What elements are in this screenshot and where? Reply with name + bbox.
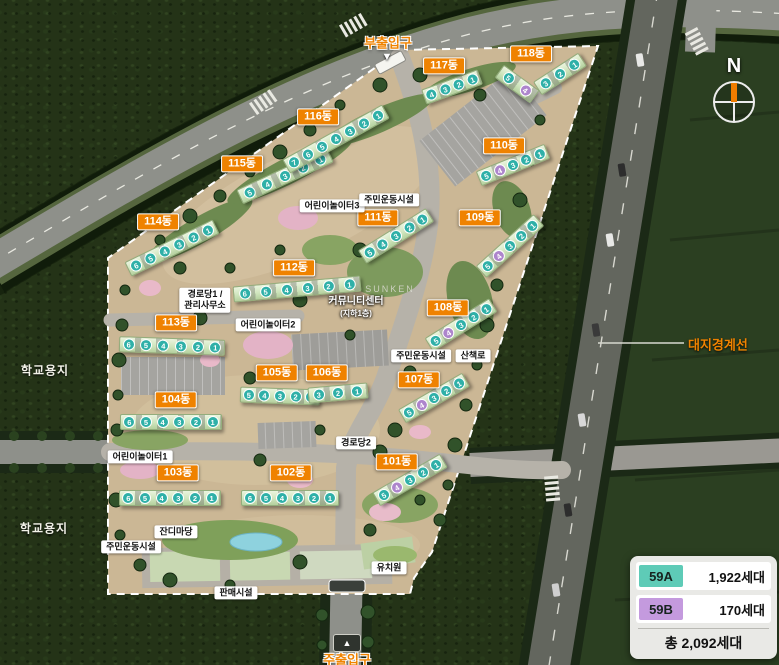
unit-circle-59A: 4: [259, 176, 275, 192]
building-label-114동: 114동: [137, 213, 179, 230]
unit-circle-59A: 6: [122, 492, 134, 504]
unit-circle-59A: 7: [286, 154, 302, 170]
facility-label: 판매시설: [214, 586, 257, 599]
boundary-label: 대지경계선: [688, 335, 748, 354]
building-label-115동: 115동: [221, 155, 263, 172]
unit-circle-59A: 6: [122, 338, 134, 350]
facility-label: 커뮤니티센터(지하1층): [328, 296, 383, 319]
unit-circle-59A: 3: [174, 340, 186, 352]
unit-circle-59A: 3: [502, 238, 519, 255]
building-label-108동: 108동: [427, 299, 469, 316]
unit-circle-59A: 1: [200, 222, 216, 238]
facility-label: 어린이놀이터1: [108, 450, 173, 463]
legend-swatch: 59B: [639, 598, 683, 620]
unit-circle-59A: 2: [451, 77, 466, 92]
unit-circle-59A: 1: [532, 146, 548, 162]
facility-label: 주민운동시설: [101, 540, 161, 553]
unit-circle-59A: 3: [172, 492, 184, 504]
unit-type-legend: 59A1,922세대59B170세대 총 2,092세대: [630, 556, 777, 659]
unit-circle-59A: 5: [243, 389, 255, 401]
unit-circle-59A: 4: [424, 87, 439, 102]
unit-circle-59A: 5: [314, 139, 330, 155]
unit-circle-59A: 4: [156, 492, 168, 504]
unit-circle-59A: 3: [292, 492, 304, 504]
unit-circle-59A: 5: [140, 416, 152, 428]
unit-circle-59A: 2: [289, 390, 301, 402]
unit-circle-59A: 1: [343, 278, 356, 291]
building-strip-118동: 54: [494, 65, 539, 104]
unit-circle-59A: 1: [351, 385, 364, 398]
unit-circle-59A: 2: [192, 341, 204, 353]
entrance-arrow-icon: ▼: [382, 51, 393, 63]
building-label-107동: 107동: [398, 371, 440, 388]
unit-circle-59A: 5: [361, 244, 378, 261]
unit-circle-59B: 4: [490, 248, 507, 265]
unit-circle-59A: 5: [500, 69, 517, 86]
unit-circle-59B: 4: [492, 163, 508, 179]
building-strip-113동: 654321: [119, 336, 225, 356]
unit-circle-59A: 1: [465, 72, 480, 87]
building-label-104동: 104동: [155, 391, 197, 408]
building-label-116동: 116동: [297, 108, 339, 125]
facility-label: 주민운동시설: [359, 193, 419, 206]
facility-label: 경로당1 /관리사무소: [179, 288, 230, 313]
unit-circle-59A: 1: [370, 108, 386, 124]
unit-circle-59A: 3: [171, 236, 187, 252]
site-plan-image: 54321101동654321102동654321103동654321104동5…: [0, 0, 779, 665]
unit-circle-59A: 3: [274, 390, 286, 402]
unit-circle-59B: 4: [389, 479, 405, 495]
unit-circle-59A: 5: [260, 492, 272, 504]
unit-circle-59B: 4: [517, 82, 534, 99]
unit-circle-59A: 5: [142, 250, 158, 266]
unit-circle-59A: 2: [513, 227, 530, 244]
unit-circle-59A: 5: [375, 487, 391, 503]
building-strip-104동: 654321: [120, 414, 222, 430]
unit-circle-59A: 2: [331, 387, 344, 400]
unit-circle-59A: 5: [259, 285, 272, 298]
unit-circle-59A: 6: [244, 492, 256, 504]
compass: N: [710, 56, 758, 131]
unit-circle-59A: 3: [173, 416, 185, 428]
building-strip-102동: 654321: [241, 490, 339, 506]
unit-circle-59A: 4: [328, 131, 344, 147]
unit-circle-59A: 5: [241, 185, 257, 201]
unit-circle-59A: 2: [308, 492, 320, 504]
legend-value: 170세대: [689, 600, 765, 619]
legend-value: 1,922세대: [689, 567, 765, 586]
compass-north-label: N: [710, 56, 758, 76]
unit-circle-59A: 1: [324, 492, 336, 504]
unit-circle-59A: 3: [388, 228, 405, 245]
legend-row: 59A1,922세대: [636, 562, 771, 590]
unit-circle-59A: 3: [312, 388, 325, 401]
unit-circle-59A: 6: [128, 258, 144, 274]
unit-circle-59A: 5: [478, 168, 494, 184]
unit-circle-59A: 3: [537, 75, 554, 92]
building-label-101동: 101동: [376, 453, 418, 470]
school-site-label: 학교용지: [20, 520, 68, 537]
unit-circle-59A: 2: [401, 219, 418, 236]
unit-circle-59A: 4: [258, 389, 270, 401]
facility-label: 산책로: [456, 349, 491, 362]
building-strip-117동: 4321: [421, 69, 483, 105]
unit-circle-59A: 3: [342, 123, 358, 139]
unit-circle-59A: 4: [157, 416, 169, 428]
unit-circle-59A: 2: [322, 280, 335, 293]
unit-circle-59A: 1: [428, 457, 444, 473]
unit-circle-59A: 5: [401, 404, 417, 420]
unit-circle-59A: 6: [300, 146, 316, 162]
unit-circle-59A: 2: [190, 416, 202, 428]
legend-total: 총 2,092세대: [638, 628, 769, 655]
facility-label: 유치원: [372, 561, 407, 574]
facility-label: 잔디마당: [154, 525, 197, 538]
building-label-109동: 109동: [459, 209, 501, 226]
unit-circle-59A: 6: [238, 287, 251, 300]
unit-circle-59A: 2: [552, 66, 569, 83]
building-label-102동: 102동: [270, 464, 312, 481]
unit-circle-59A: 1: [451, 375, 467, 391]
facility-label: 주민운동시설: [391, 349, 451, 362]
facility-label: 어린이놀이터2: [236, 318, 301, 331]
unit-circle-59A: 3: [437, 82, 452, 97]
unit-circle-59A: 4: [280, 283, 293, 296]
unit-circle-59A: 1: [478, 301, 495, 318]
entrance-label: 부출입구: [364, 33, 412, 52]
unit-circle-59A: 6: [123, 416, 135, 428]
building-label-105동: 105동: [256, 364, 298, 381]
unit-circle-59A: 5: [479, 258, 496, 275]
unit-circle-59A: 2: [186, 229, 202, 245]
facility-label: 어린이놀이터3: [300, 199, 365, 212]
building-label-106동: 106동: [306, 364, 348, 381]
unit-circle-59A: 4: [276, 492, 288, 504]
unit-circle-59A: 4: [157, 243, 173, 259]
building-label-110동: 110동: [483, 137, 525, 154]
building-label-112동: 112동: [273, 259, 315, 276]
unit-circle-59A: 1: [566, 56, 583, 73]
unit-circle-59A: 3: [453, 317, 470, 334]
unit-circle-59A: 5: [140, 339, 152, 351]
building-strip-106동: 321: [307, 382, 368, 403]
facility-label: SUNKEN: [365, 284, 415, 294]
unit-circle-59A: 5: [139, 492, 151, 504]
unit-circle-59A: 2: [189, 492, 201, 504]
unit-circle-59A: 4: [157, 339, 169, 351]
unit-circle-59B: 4: [440, 325, 457, 342]
legend-swatch: 59A: [639, 565, 683, 587]
school-site-label: 학교용지: [21, 362, 69, 379]
unit-circle-59A: 1: [414, 211, 431, 228]
unit-circle-59A: 3: [402, 472, 418, 488]
building-label-113동: 113동: [155, 314, 197, 331]
legend-row: 59B170세대: [636, 595, 771, 623]
unit-circle-59A: 3: [301, 282, 314, 295]
building-label-117동: 117동: [423, 57, 465, 74]
compass-rose-icon: [710, 76, 758, 126]
building-strip-103동: 654321: [119, 490, 221, 506]
building-label-118동: 118동: [510, 45, 552, 62]
unit-circle-59A: 2: [356, 115, 372, 131]
unit-circle-59A: 1: [207, 416, 219, 428]
facility-label: 경로당2: [336, 436, 376, 449]
unit-circle-59A: 1: [206, 492, 218, 504]
unit-circle-59A: 1: [209, 341, 221, 353]
entrance-arrow-icon: ▲: [333, 634, 361, 652]
unit-circle-59A: 3: [505, 157, 521, 173]
unit-circle-59A: 4: [374, 236, 391, 253]
unit-circle-59A: 1: [524, 217, 541, 234]
building-label-103동: 103동: [157, 464, 199, 481]
